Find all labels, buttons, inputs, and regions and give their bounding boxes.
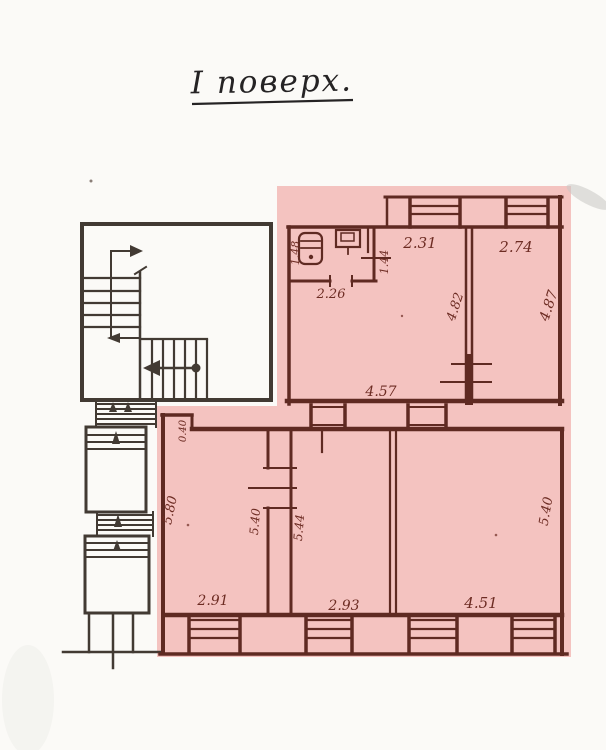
dim-room-mid-depth: 5.44 xyxy=(291,514,307,542)
stairs-up-arrow xyxy=(107,245,143,343)
dim-room-mid-width: 2.93 xyxy=(327,598,359,614)
porch-base xyxy=(89,613,133,668)
steps-top xyxy=(96,401,156,427)
entry-steps-column xyxy=(63,401,160,668)
floorplan-drawing: І поверх. xyxy=(0,0,606,750)
stair-block xyxy=(82,224,271,400)
page-title: І поверх. xyxy=(189,63,353,104)
dim-bath-side: 1.44 xyxy=(378,250,391,275)
dim-room-right-width: 4.51 xyxy=(463,594,497,612)
dim-notch: 0.40 xyxy=(178,419,189,442)
dim-bath-length: 2.26 xyxy=(316,287,346,302)
dim-room-left-width: 2.91 xyxy=(196,593,228,609)
step-arrow xyxy=(113,540,121,551)
dim-room-left-depth-right: 5.40 xyxy=(247,507,263,535)
page-title-text: І поверх. xyxy=(189,63,353,102)
pink-highlight xyxy=(2,180,606,750)
step-arrow xyxy=(112,431,120,444)
scan-shadow xyxy=(2,645,54,750)
dim-bath-width: 1.48 xyxy=(289,241,302,266)
dim-room-top-left-width: 2.31 xyxy=(402,234,436,252)
dim-hall-width: 4.57 xyxy=(364,384,396,400)
floorplan-scan: І поверх. xyxy=(0,0,606,750)
steps-middle xyxy=(97,512,153,536)
dim-room-top-right-width: 2.74 xyxy=(498,238,532,256)
